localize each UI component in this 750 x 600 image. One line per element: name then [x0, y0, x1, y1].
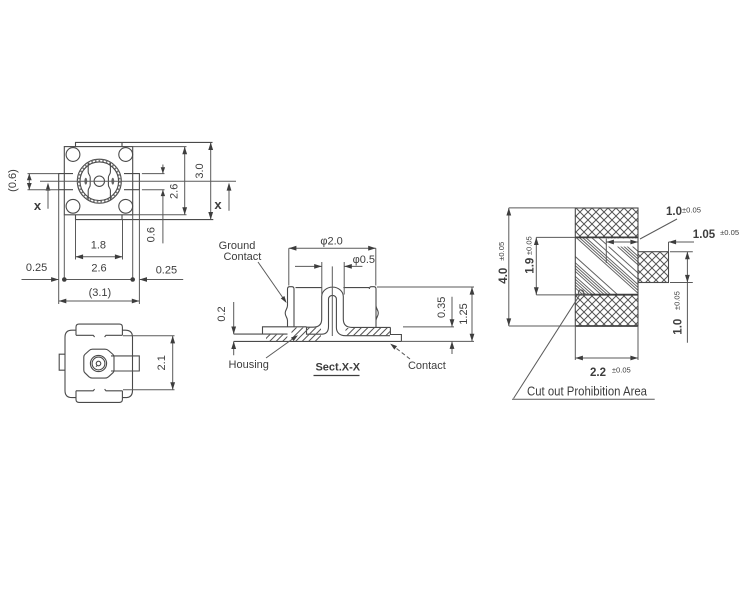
svg-text:±0.05: ±0.05: [612, 366, 631, 375]
svg-text:2.6: 2.6: [169, 184, 181, 199]
svg-text:±0.05: ±0.05: [720, 228, 739, 237]
svg-text:±0.05: ±0.05: [673, 291, 682, 310]
svg-text:0.6: 0.6: [145, 227, 157, 242]
svg-text:3.0: 3.0: [194, 163, 206, 178]
svg-text:±0.05: ±0.05: [497, 242, 506, 261]
svg-text:0.25: 0.25: [156, 265, 177, 277]
svg-text:0.2: 0.2: [216, 306, 228, 321]
svg-text:4.0: 4.0: [498, 268, 510, 284]
svg-text:0.35: 0.35: [436, 297, 448, 318]
svg-text:1.9: 1.9: [525, 258, 537, 274]
svg-text:(3.1): (3.1): [89, 287, 112, 299]
svg-text:±0.05: ±0.05: [524, 236, 533, 255]
svg-text:x: x: [34, 198, 42, 213]
svg-text:1.8: 1.8: [91, 239, 106, 251]
svg-text:Housing: Housing: [229, 359, 269, 371]
svg-text:Sect.X-X: Sect.X-X: [315, 362, 360, 374]
svg-text:x: x: [214, 197, 222, 212]
svg-text:Contact: Contact: [408, 360, 446, 372]
svg-text:φ2.0: φ2.0: [320, 236, 342, 248]
svg-text:Contact: Contact: [223, 251, 261, 263]
svg-text:0.25: 0.25: [26, 262, 47, 274]
svg-text:1.25: 1.25: [458, 303, 470, 324]
svg-text:±0.05: ±0.05: [682, 206, 701, 215]
svg-text:1.0: 1.0: [673, 319, 685, 335]
svg-text:2.2: 2.2: [590, 367, 606, 379]
svg-text:φ0.5: φ0.5: [353, 254, 375, 266]
svg-text:(0.6): (0.6): [7, 169, 19, 192]
svg-text:Cut out Prohibition Area: Cut out Prohibition Area: [527, 384, 648, 399]
svg-text:1.0: 1.0: [666, 206, 682, 218]
svg-text:2.1: 2.1: [156, 355, 168, 370]
svg-text:2.6: 2.6: [91, 263, 106, 275]
svg-text:1.05: 1.05: [693, 229, 716, 241]
